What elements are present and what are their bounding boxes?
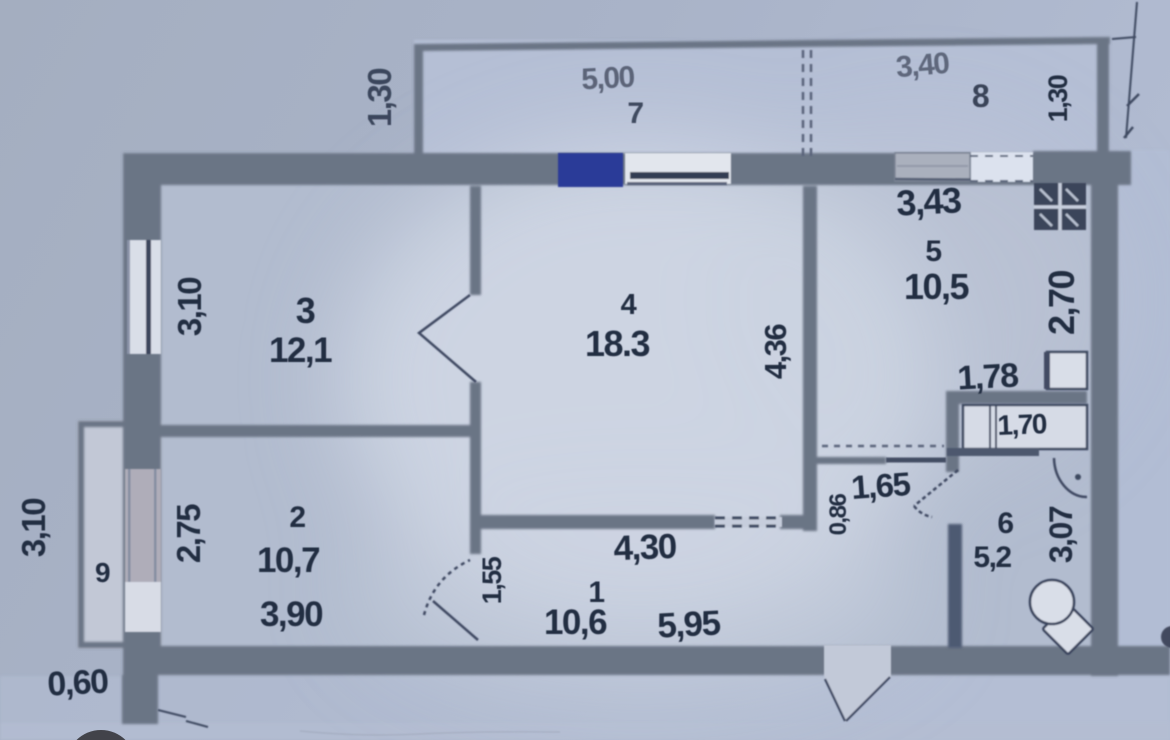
svg-text:2: 2 — [289, 501, 305, 534]
svg-text:3,90: 3,90 — [260, 595, 323, 634]
svg-text:10,7: 10,7 — [257, 541, 319, 580]
svg-text:9: 9 — [95, 557, 110, 588]
svg-text:5,95: 5,95 — [656, 603, 721, 645]
svg-text:4,30: 4,30 — [613, 527, 677, 568]
svg-text:4,36: 4,36 — [758, 324, 793, 380]
svg-text:1,55: 1,55 — [477, 556, 507, 604]
svg-text:7: 7 — [627, 97, 643, 130]
svg-text:3,43: 3,43 — [895, 179, 962, 223]
svg-text:5,2: 5,2 — [973, 541, 1011, 574]
svg-text:1,30: 1,30 — [361, 69, 398, 127]
svg-text:3,10: 3,10 — [15, 499, 52, 557]
svg-text:10,6: 10,6 — [544, 603, 607, 642]
svg-text:5,00: 5,00 — [580, 61, 635, 97]
svg-text:6: 6 — [997, 507, 1013, 540]
svg-text:3,40: 3,40 — [895, 47, 951, 85]
svg-text:10,5: 10,5 — [904, 266, 970, 307]
svg-text:8: 8 — [972, 78, 989, 114]
svg-text:1,78: 1,78 — [956, 356, 1019, 397]
svg-text:3: 3 — [296, 290, 315, 331]
svg-text:3,10: 3,10 — [171, 278, 208, 336]
svg-text:4: 4 — [621, 289, 637, 321]
svg-text:2,75: 2,75 — [170, 504, 207, 563]
svg-text:0,86: 0,86 — [825, 493, 852, 535]
svg-text:18.3: 18.3 — [585, 323, 650, 364]
svg-text:12,1: 12,1 — [269, 331, 332, 370]
svg-text:0,60: 0,60 — [46, 662, 109, 703]
svg-text:5: 5 — [925, 235, 941, 268]
svg-text:3,07: 3,07 — [1043, 506, 1079, 563]
svg-text:1,65: 1,65 — [850, 465, 912, 506]
svg-text:1,70: 1,70 — [997, 408, 1047, 441]
svg-text:1,30: 1,30 — [1043, 75, 1073, 122]
svg-text:2,70: 2,70 — [1041, 270, 1082, 335]
